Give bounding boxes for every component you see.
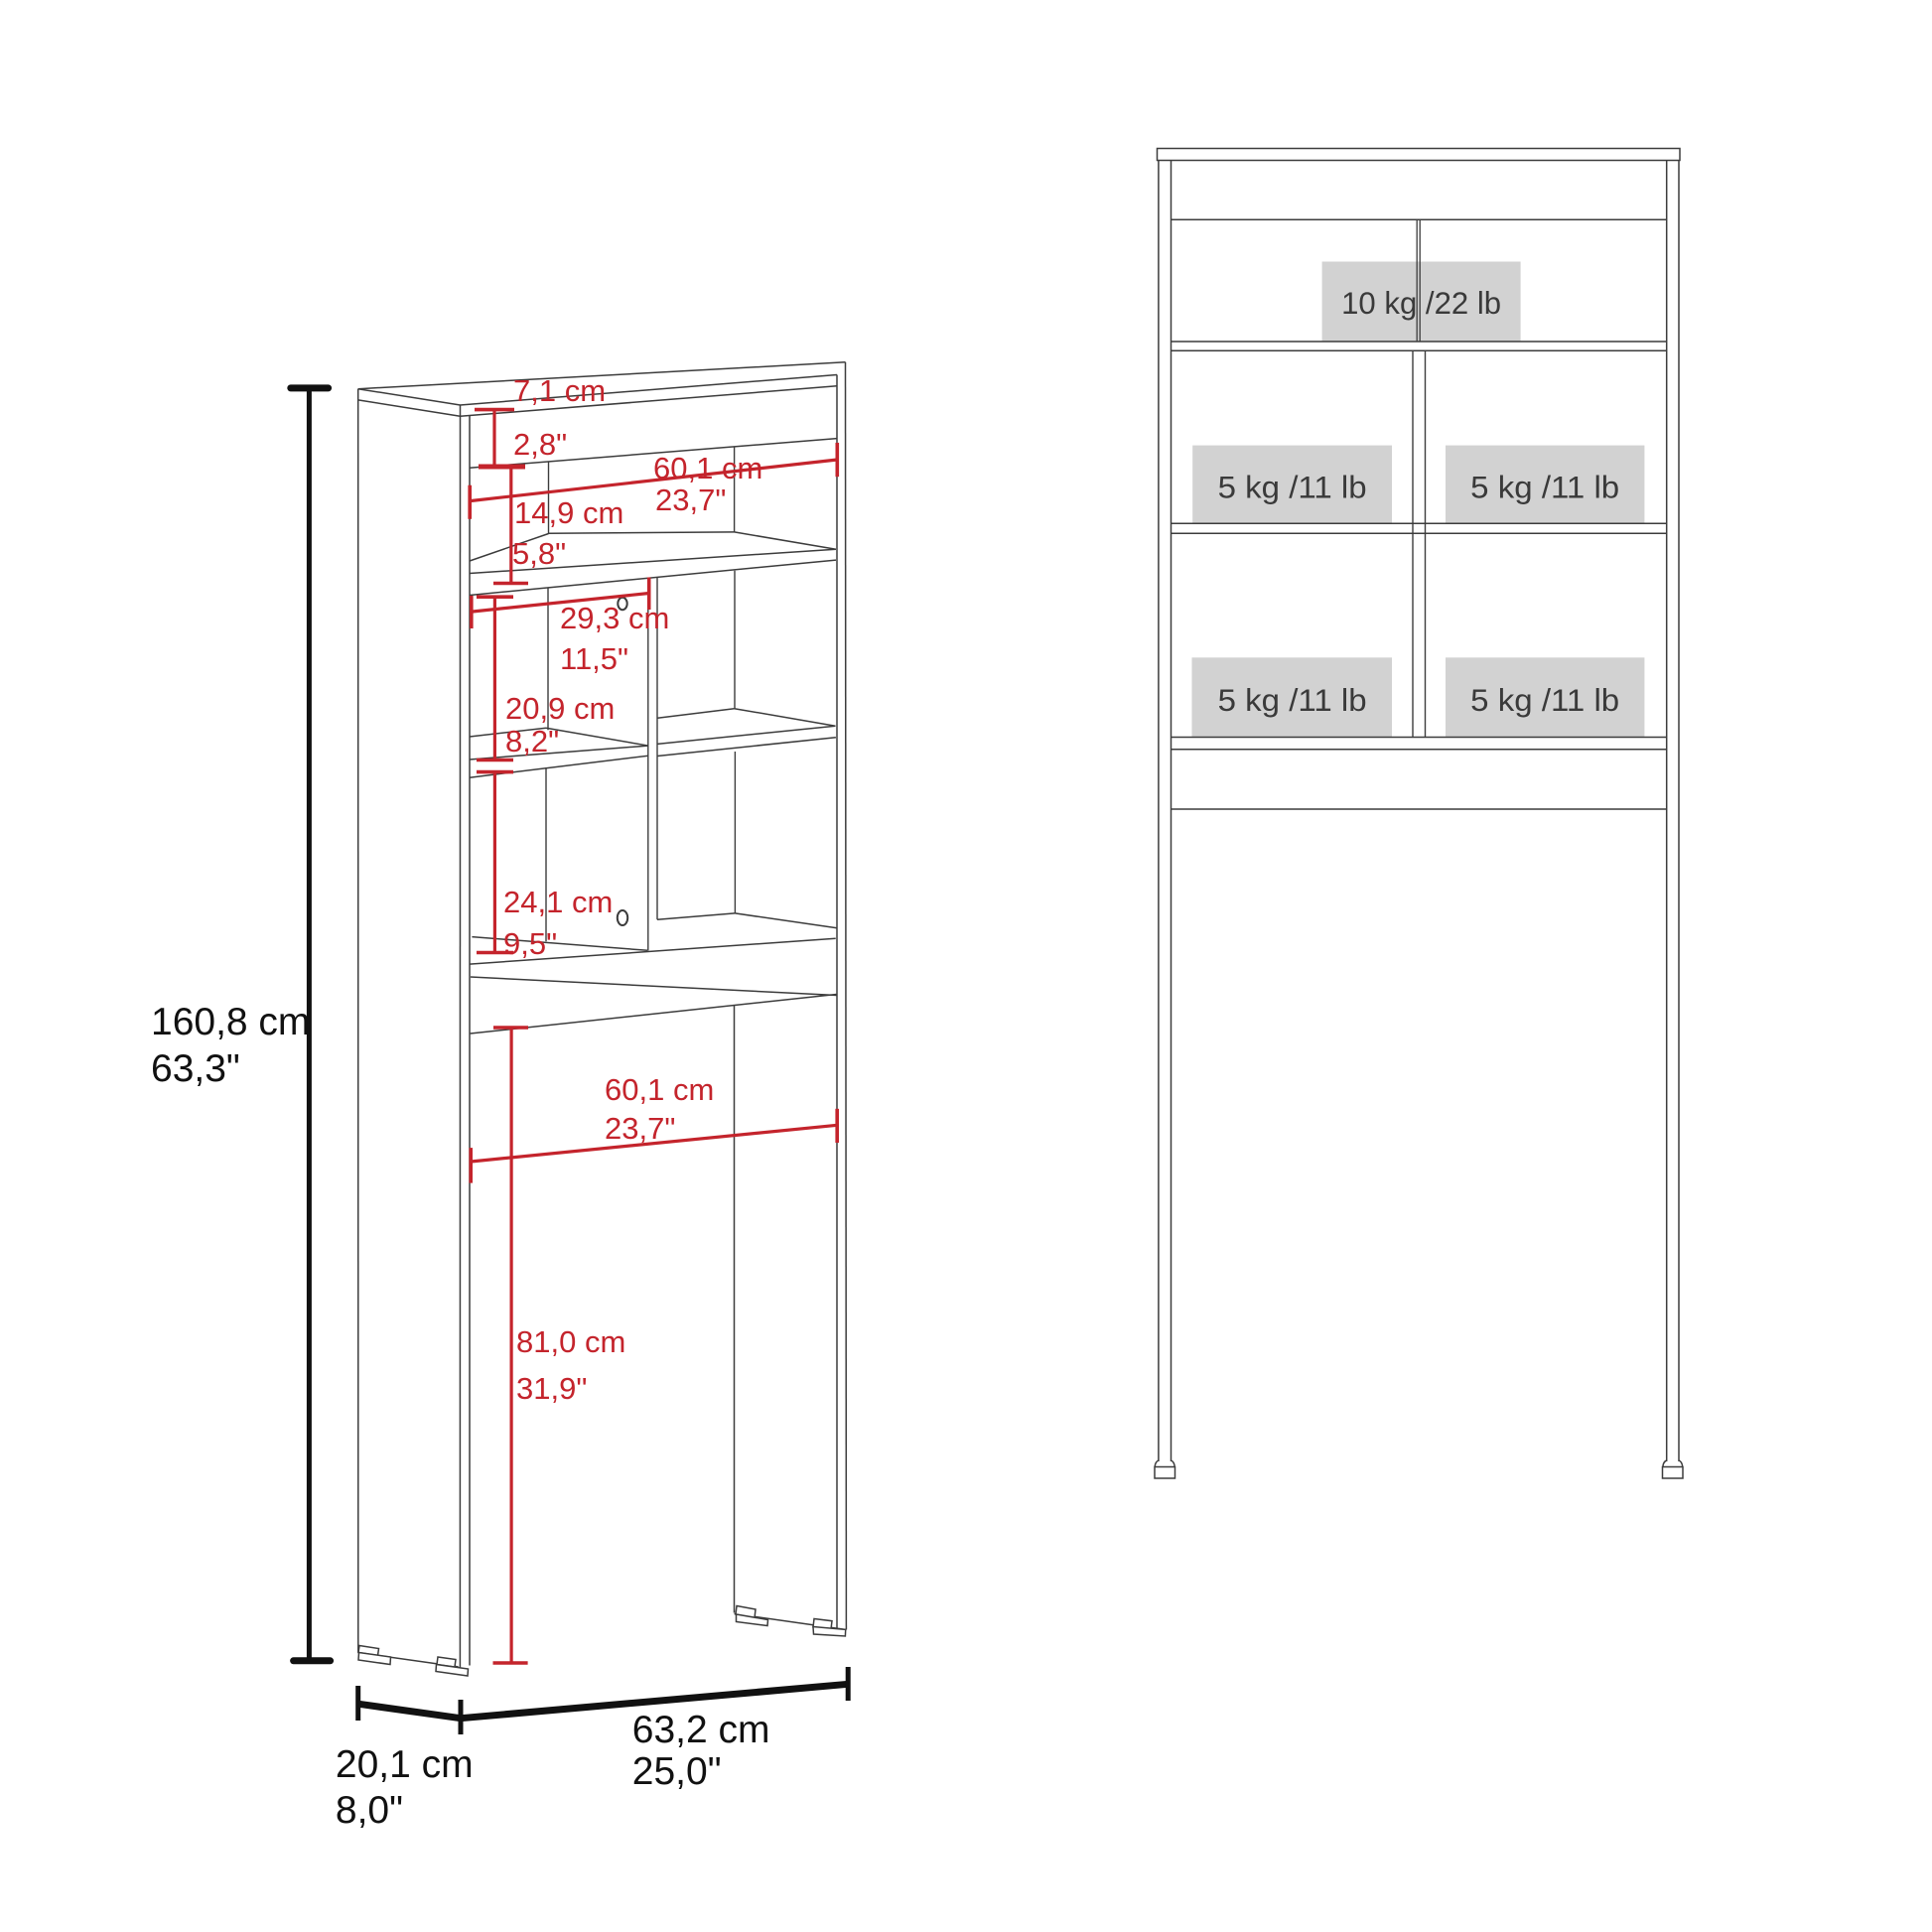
svg-text:5 kg /11 lb: 5 kg /11 lb [1470, 682, 1619, 718]
svg-text:5,8": 5,8" [512, 536, 566, 571]
svg-text:60,1 cm: 60,1 cm [605, 1072, 714, 1107]
svg-text:9,5": 9,5" [503, 926, 557, 961]
svg-text:11,5": 11,5" [560, 641, 628, 676]
svg-text:5 kg /11 lb: 5 kg /11 lb [1218, 682, 1367, 718]
svg-text:29,3 cm: 29,3 cm [560, 601, 669, 635]
svg-text:8,0": 8,0" [336, 1789, 403, 1832]
svg-text:60,1 cm: 60,1 cm [653, 451, 762, 485]
svg-text:8,2": 8,2" [505, 724, 559, 759]
svg-text:63,2 cm: 63,2 cm [632, 1709, 770, 1751]
svg-text:7,1 cm: 7,1 cm [513, 373, 606, 408]
svg-text:2,8": 2,8" [513, 427, 567, 462]
svg-text:23,7": 23,7" [655, 483, 726, 517]
svg-text:5 kg /11 lb: 5 kg /11 lb [1470, 470, 1619, 505]
svg-text:160,8 cm: 160,8 cm [151, 1001, 310, 1043]
svg-text:10 kg /22 lb: 10 kg /22 lb [1341, 285, 1501, 321]
svg-text:25,0": 25,0" [632, 1750, 722, 1793]
svg-text:24,1 cm: 24,1 cm [503, 885, 613, 919]
svg-text:81,0 cm: 81,0 cm [516, 1324, 625, 1359]
svg-text:20,9 cm: 20,9 cm [505, 691, 615, 726]
svg-text:5 kg /11 lb: 5 kg /11 lb [1218, 470, 1367, 505]
svg-text:31,9": 31,9" [516, 1371, 587, 1406]
svg-text:14,9 cm: 14,9 cm [514, 495, 623, 530]
svg-text:63,3": 63,3" [151, 1047, 240, 1090]
svg-text:23,7": 23,7" [605, 1111, 675, 1146]
svg-text:20,1 cm: 20,1 cm [336, 1743, 474, 1786]
